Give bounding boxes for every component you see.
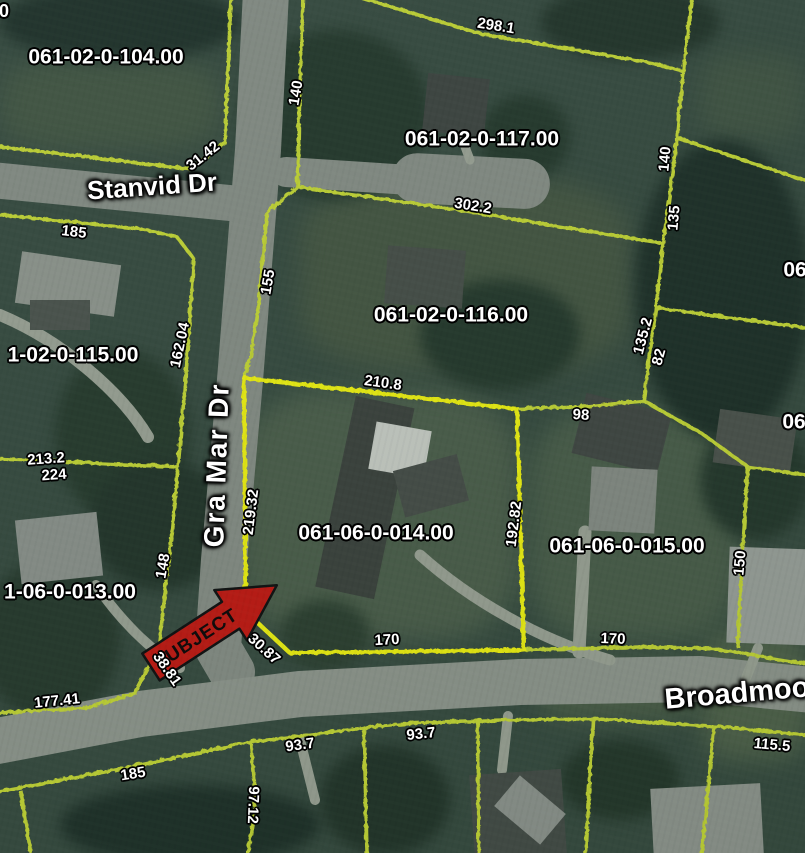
parcel-line <box>655 307 805 327</box>
house-roof <box>15 512 103 584</box>
parcel-line <box>358 0 681 70</box>
driveway <box>579 532 585 652</box>
road-broadmoor <box>0 679 805 742</box>
parcel-line <box>676 137 805 180</box>
house-roof <box>384 245 466 308</box>
house-roof <box>30 300 90 330</box>
house-roof <box>588 466 657 533</box>
gis-map-canvas[interactable]: SUBJECT 061-02-0-104.00061-02-0-117.0006… <box>0 0 805 853</box>
road-stanvid-dr-west <box>0 180 240 204</box>
parcel-line <box>0 458 176 466</box>
driveway <box>300 740 315 800</box>
driveway <box>0 315 148 437</box>
driveway <box>502 716 508 770</box>
parcel-line <box>643 0 691 398</box>
parcel-line <box>247 741 255 853</box>
parcel-line <box>20 791 30 853</box>
house-roof <box>713 409 798 473</box>
roads-layer <box>0 0 805 800</box>
road-stanvid-dr-east <box>286 172 410 180</box>
parcel-line <box>0 0 230 168</box>
parcel-line <box>585 719 592 853</box>
parcel-line <box>363 727 366 853</box>
house-roof <box>422 73 490 137</box>
parcel-line <box>477 721 478 853</box>
map-vector-layer: SUBJECT <box>0 0 805 853</box>
